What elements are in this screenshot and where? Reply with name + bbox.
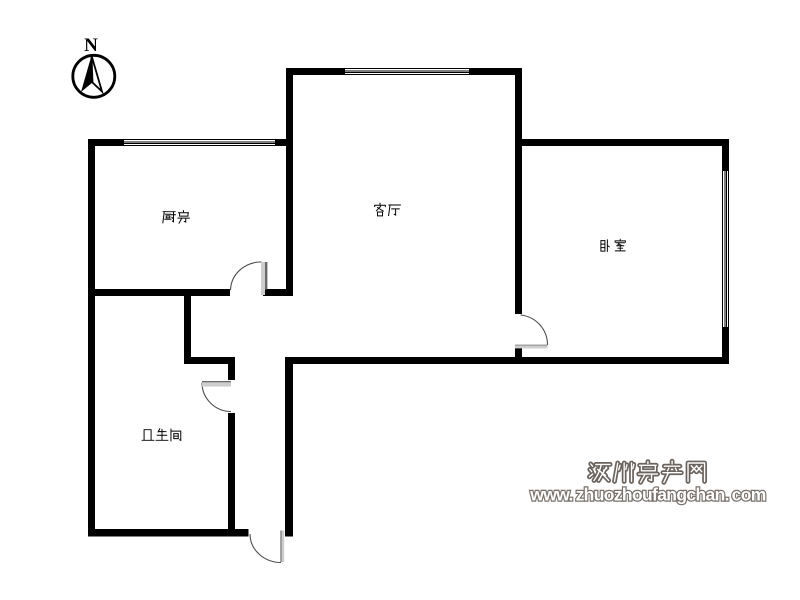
svg-text:www. zhuozhoufangchan. com: www. zhuozhoufangchan. com — [529, 485, 766, 505]
svg-text:N: N — [84, 35, 98, 56]
